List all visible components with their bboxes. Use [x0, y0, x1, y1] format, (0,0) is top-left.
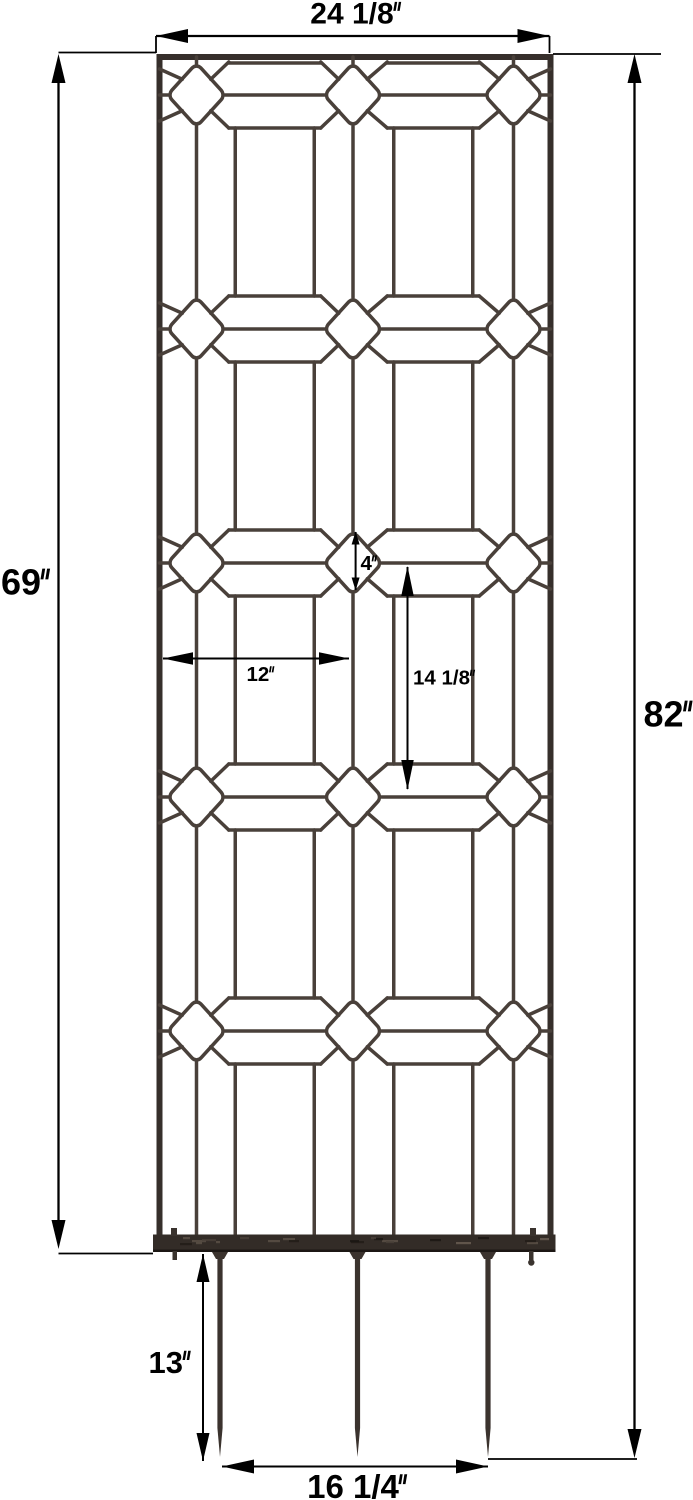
svg-text:16 1/4: 16 1/4: [307, 1468, 399, 1500]
svg-text:4: 4: [361, 552, 373, 575]
svg-text:82: 82: [644, 694, 684, 735]
svg-text:12: 12: [247, 663, 270, 686]
svg-text:24 1/8: 24 1/8: [310, 0, 393, 31]
svg-text:69: 69: [1, 562, 41, 603]
svg-text:14 1/8: 14 1/8: [413, 667, 470, 690]
svg-text:13: 13: [149, 1345, 183, 1380]
